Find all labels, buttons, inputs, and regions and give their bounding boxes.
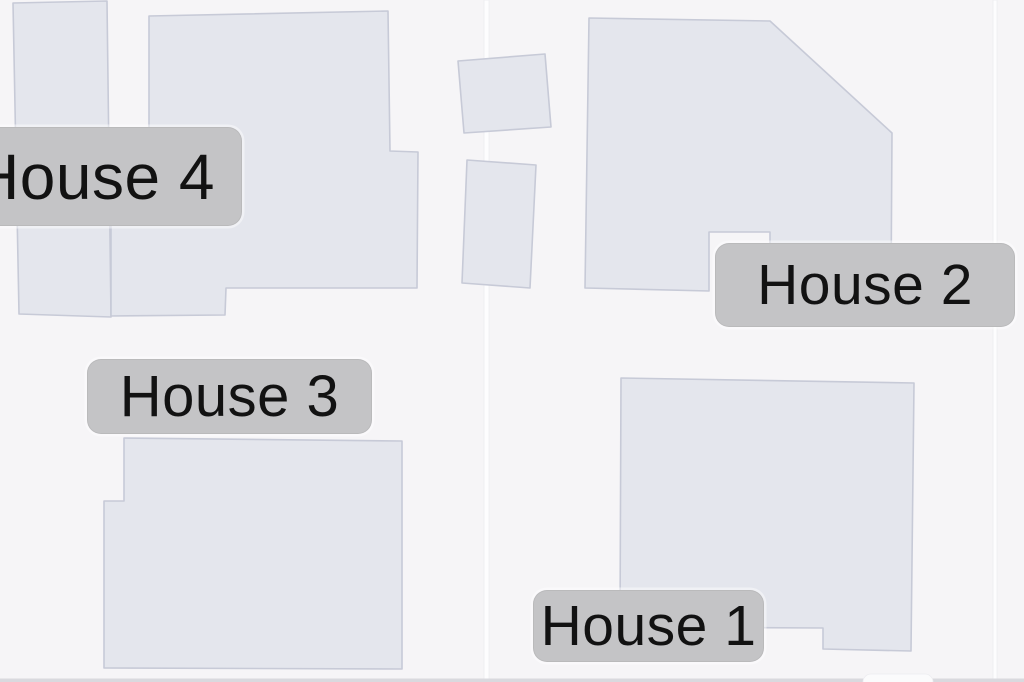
- building-outbuilding-upper: [458, 54, 551, 133]
- building-house-3-main: [104, 438, 402, 669]
- map-label-house-4[interactable]: House 4: [0, 127, 242, 226]
- map-label-house-3[interactable]: House 3: [87, 359, 372, 434]
- map-label-house-2[interactable]: House 2: [715, 243, 1015, 327]
- map-label-house-1[interactable]: House 1: [533, 590, 764, 662]
- map-features-layer: [0, 0, 1024, 682]
- building-outbuilding-lower: [462, 160, 536, 288]
- road-vertical-right: [993, 0, 997, 682]
- partial-label-bubble: [863, 674, 933, 682]
- map-canvas[interactable]: House 4 House 2 House 3 House 1: [0, 0, 1024, 682]
